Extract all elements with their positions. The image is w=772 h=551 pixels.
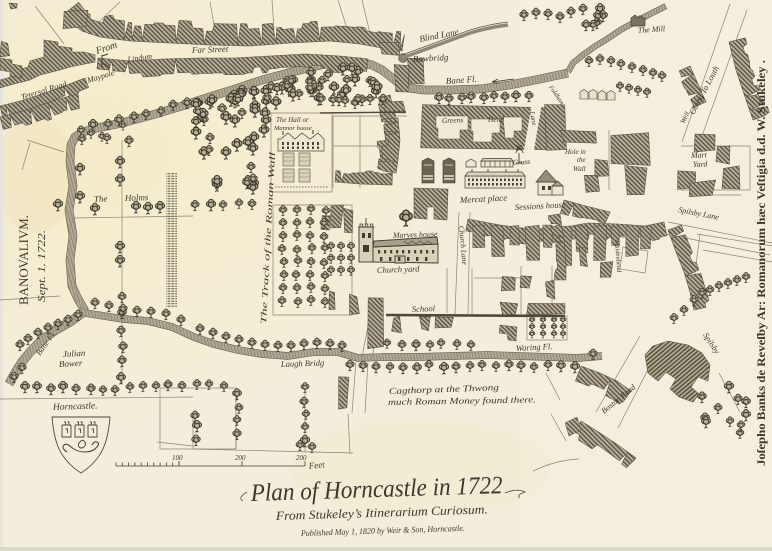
svg-text:Church yard: Church yard [377,263,421,275]
svg-text:Waring Fl.: Waring Fl. [516,341,553,353]
svg-text:Cross: Cross [513,157,531,167]
svg-text:Mannor house: Mannor house [273,125,312,132]
svg-text:Maryes house: Maryes house [392,229,438,240]
svg-text:The Hall or: The Hall or [276,116,309,124]
svg-text:100: 100 [172,454,183,462]
svg-text:200: 200 [235,454,246,462]
svg-text:Far Street: Far Street [191,44,229,55]
svg-text:Head: Head [487,114,505,124]
svg-text:The: The [94,194,108,204]
svg-text:BANOVALIVM.: BANOVALIVM. [16,215,31,305]
svg-text:Bower: Bower [59,358,83,369]
svg-text:Greens: Greens [442,115,464,125]
svg-text:School: School [412,303,436,314]
svg-text:Wall: Wall [573,165,586,173]
svg-text:Holms: Holms [124,192,149,203]
svg-text:Sept. 1. 1722.: Sept. 1. 1722. [37,230,48,302]
svg-text:Bowbridg: Bowbridg [413,52,449,64]
svg-text:200: 200 [296,454,307,462]
svg-text:Hole in: Hole in [564,148,586,156]
svg-text:Horncastle.: Horncastle. [52,401,98,413]
svg-text:Laugh Bridg: Laugh Bridg [280,357,325,369]
svg-text:Joſepho Banks de Reveſby Ar: R: Joſepho Banks de Reveſby Ar: Romanorum h… [754,60,768,466]
svg-text:Feet: Feet [307,459,325,471]
svg-text:Yard: Yard [693,159,709,169]
svg-text:the: the [577,156,586,164]
